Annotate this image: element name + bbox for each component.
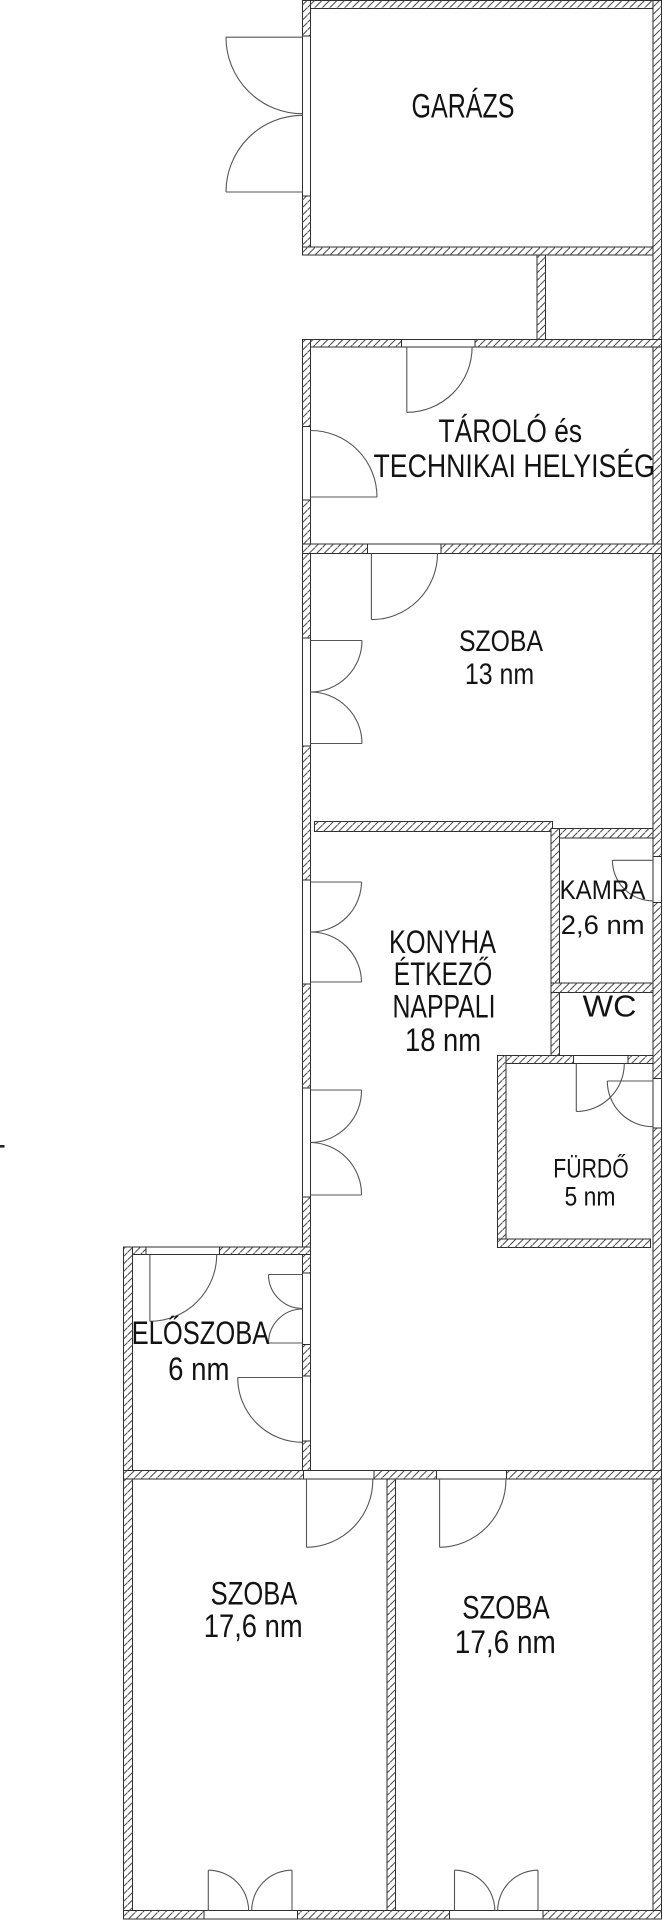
svg-text:TÁROLÓ és: TÁROLÓ és bbox=[439, 413, 583, 449]
svg-text:2,6 nm: 2,6 nm bbox=[561, 910, 645, 940]
svg-text:FÜRDŐ: FÜRDŐ bbox=[553, 1153, 628, 1183]
svg-text:6 nm: 6 nm bbox=[168, 1351, 229, 1387]
svg-text:KAMRA: KAMRA bbox=[560, 875, 646, 905]
svg-text:5 nm: 5 nm bbox=[565, 1181, 616, 1211]
svg-text:NAPPALI: NAPPALI bbox=[393, 989, 496, 1025]
svg-text:TECHNIKAI HELYISÉG: TECHNIKAI HELYISÉG bbox=[373, 448, 655, 484]
svg-text:ELŐSZOBA: ELŐSZOBA bbox=[132, 1315, 270, 1351]
svg-text:WC: WC bbox=[583, 989, 637, 1024]
svg-text:ÉTKEZŐ: ÉTKEZŐ bbox=[394, 956, 492, 992]
svg-text:GARÁZS: GARÁZS bbox=[412, 88, 515, 126]
svg-text:SZOBA: SZOBA bbox=[459, 625, 543, 658]
svg-text:KONYHA: KONYHA bbox=[389, 924, 497, 960]
svg-text:17,6 nm: 17,6 nm bbox=[455, 1624, 556, 1660]
svg-text:SZOBA: SZOBA bbox=[211, 1576, 298, 1612]
svg-text:13 nm: 13 nm bbox=[465, 658, 534, 691]
svg-text:18 nm: 18 nm bbox=[405, 1022, 481, 1058]
svg-text:17,6 nm: 17,6 nm bbox=[204, 1608, 303, 1644]
svg-text:SZOBA: SZOBA bbox=[462, 1590, 550, 1626]
